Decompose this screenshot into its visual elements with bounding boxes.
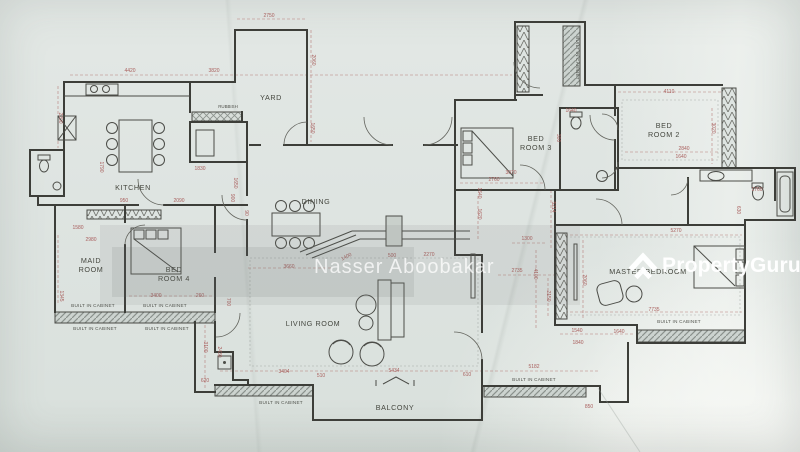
- dimension-label: 2150: [545, 290, 551, 301]
- dimension-label: 1840: [572, 340, 583, 346]
- dimension-label: 510: [317, 373, 326, 379]
- rubbish-chute: [192, 112, 242, 121]
- room-label: LIVING ROOM: [286, 319, 341, 328]
- built-in-cabinet-label: BUILT IN CABINET: [145, 326, 189, 331]
- master-chair: [596, 279, 625, 306]
- built-in-cabinet-label: BUILT IN CABINET: [143, 303, 187, 308]
- room-label: BEDROOM 3: [520, 134, 552, 152]
- balcony-door-mark: [383, 377, 409, 384]
- dimension-label: 850: [585, 404, 594, 410]
- brand-property: Property: [662, 254, 750, 277]
- dimension-label: 2060: [310, 54, 316, 65]
- toilet-bedroom3-bath: [570, 112, 608, 182]
- wardrobe-bedroom2: [722, 88, 736, 168]
- dimension-label: 7735: [648, 307, 659, 313]
- built-in-cabinet-label: BUILT IN CABINET: [71, 303, 115, 308]
- propertyguru-logo: PropertyGuru: [627, 247, 800, 285]
- room-labels-layer: YARDKITCHENDININGBEDROOM 3BEDROOM 2MAIDR…: [79, 93, 687, 412]
- room-label: BEDROOM 2: [648, 121, 680, 139]
- built-in-cabinet-label: BUILT IN CABINET: [657, 319, 701, 324]
- dimension-label: 260: [196, 293, 205, 299]
- dimension-label: 700: [225, 298, 231, 307]
- dimension-label: 900: [229, 194, 235, 203]
- kitchen-stove: [86, 84, 118, 95]
- fixture-label: RUBBISH: [218, 104, 238, 109]
- corridor-basin: [218, 356, 231, 369]
- dimension-label: 1640: [613, 329, 624, 335]
- sofa: [378, 280, 404, 340]
- dimension-label: 2200: [57, 112, 63, 123]
- watermark-agent-name: Nasser Aboobakar: [314, 256, 495, 279]
- dimension-label: 2430: [216, 346, 222, 357]
- toilet-left-bath: [38, 155, 61, 190]
- dimension-label: 4100: [532, 268, 538, 279]
- dimension-label: 3660: [283, 264, 294, 270]
- dining-table: [272, 201, 320, 249]
- dimension-label: 1650: [309, 122, 315, 133]
- floorplan-photo: 2750206044203820220016501830165017901580…: [0, 0, 800, 452]
- room-label: DINING: [302, 197, 331, 206]
- dimension-label: 3820: [208, 68, 219, 74]
- built-in-cabinet-label: BUILT IN CABINET: [575, 36, 580, 80]
- dimension-label: 1790: [98, 161, 104, 172]
- propertyguru-wordmark: PropertyGuru: [662, 254, 800, 278]
- walls: [30, 22, 795, 420]
- dimension-label: 5214: [550, 201, 556, 212]
- dimension-label: 620: [201, 378, 210, 384]
- bathroom-bedroom3: [560, 108, 618, 190]
- side-table: [356, 295, 376, 315]
- dimension-label: 1640: [675, 154, 686, 160]
- dimension-label: 630: [735, 206, 741, 215]
- dimension-label: 3100: [202, 341, 208, 352]
- dimension-label: 3020: [710, 122, 716, 133]
- dimension-label: 2090: [173, 198, 184, 204]
- dimension-label: 3070: [505, 170, 516, 176]
- dimension-label: 4420: [124, 68, 135, 74]
- dimension-label: 3404: [278, 369, 289, 375]
- built-in-cabinet-label: BUILT IN CABINET: [259, 400, 303, 405]
- floorplan-svg: 2750206044203820220016501830165017901580…: [0, 0, 800, 452]
- paper-crease: [598, 388, 640, 452]
- dimension-label: 1620: [476, 208, 482, 219]
- dimension-label: 2750: [263, 13, 274, 19]
- dimension-label: 2980: [85, 237, 96, 243]
- dimension-label: 2060: [581, 274, 587, 285]
- room-label: BEDROOM 4: [158, 265, 190, 283]
- master-bath-fixtures: [700, 170, 793, 216]
- dimension-label: 300: [555, 134, 561, 143]
- dimension-label: 90: [243, 210, 249, 216]
- dimension-label: 1540: [571, 328, 582, 334]
- dimension-label: 2760: [488, 177, 499, 183]
- room-label: KITCHEN: [115, 183, 151, 192]
- room-label: BALCONY: [376, 403, 415, 412]
- dimension-label: 950: [120, 198, 129, 204]
- dimension-label: 1580: [72, 225, 83, 231]
- side-table-small: [359, 316, 373, 330]
- dimension-label: 1640: [565, 108, 576, 114]
- dimension-label: 4110: [664, 89, 675, 95]
- dimension-label: 5434: [388, 368, 399, 374]
- dimension-label: 5182: [528, 364, 539, 370]
- dimension-labels-layer: 2750206044203820220016501830165017901580…: [57, 13, 763, 410]
- dimension-label: 1345: [58, 290, 64, 301]
- dimension-label: 3400: [150, 293, 161, 299]
- dimension-label: 5270: [670, 228, 681, 234]
- kitchen-table: [107, 120, 165, 172]
- wardrobe-master: [556, 233, 567, 319]
- armchairs: [329, 340, 384, 366]
- dimension-label: 1760: [751, 187, 762, 193]
- master-dresser: [574, 244, 577, 300]
- dimension-label: 610: [463, 372, 472, 378]
- built-in-cabinet-label: BUILT IN CABINET: [512, 377, 556, 382]
- bathtub: [780, 176, 790, 212]
- brand-guru: Guru: [750, 254, 800, 277]
- dimension-label: 1650: [232, 177, 238, 188]
- dimension-label: 2840: [678, 146, 689, 152]
- dimension-label: 1300: [521, 236, 532, 242]
- dimension-label: 1830: [194, 166, 205, 172]
- built-in-cabinet-label: BUILT IN CABINET: [73, 326, 117, 331]
- room-label: YARD: [260, 93, 282, 102]
- master-table: [626, 286, 642, 302]
- dimension-label: 1640: [476, 187, 482, 198]
- steps: [300, 216, 470, 258]
- fixture-labels-layer: RUBBISH: [218, 104, 238, 109]
- door-arcs: [125, 62, 688, 384]
- dimension-label: 2735: [511, 268, 522, 274]
- room-label: MAIDROOM: [79, 256, 104, 274]
- propertyguru-chevron-icon: [627, 247, 659, 285]
